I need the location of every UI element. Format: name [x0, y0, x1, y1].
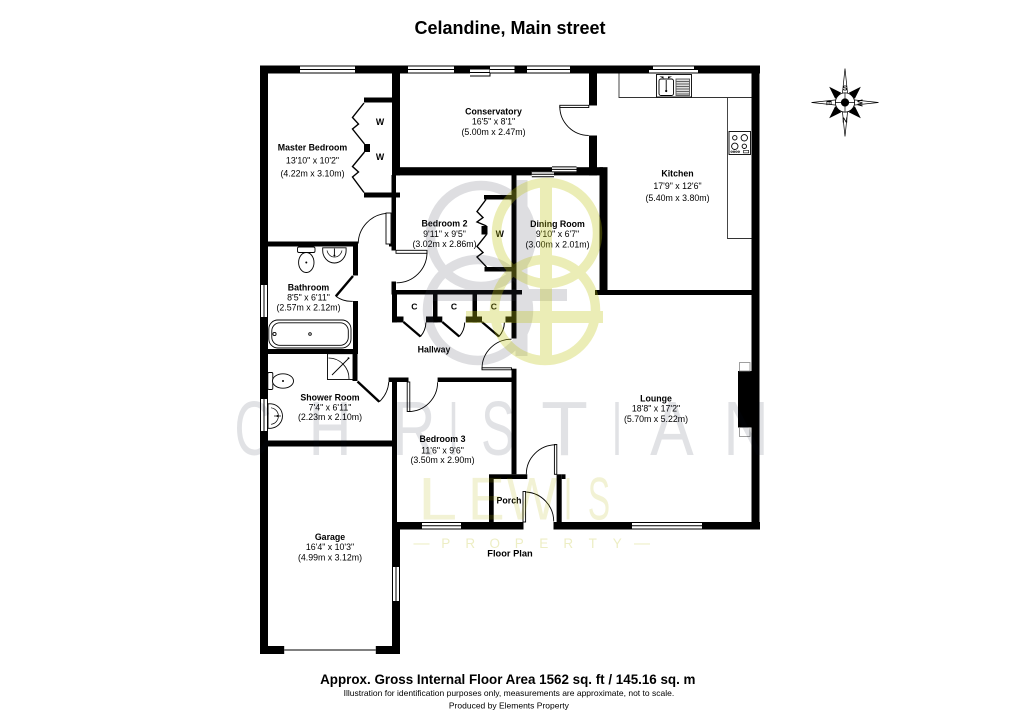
svg-text:E: E: [539, 536, 548, 551]
svg-text:P: P: [515, 536, 524, 551]
svg-text:—: —: [634, 535, 650, 552]
svg-text:W: W: [507, 467, 558, 534]
svg-text:S: S: [481, 385, 515, 471]
svg-text:I: I: [612, 385, 622, 471]
svg-text:P: P: [441, 536, 450, 551]
svg-text:N: N: [842, 115, 847, 124]
svg-text:C: C: [411, 302, 417, 312]
svg-text:(4.22m x 3.10m): (4.22m x 3.10m): [280, 168, 344, 178]
svg-text:Bathroom: Bathroom: [288, 282, 330, 292]
svg-text:S: S: [588, 466, 610, 533]
svg-text:13'10" x 10'2": 13'10" x 10'2": [286, 155, 339, 165]
svg-text:L: L: [418, 466, 457, 533]
svg-text:16'5" x 8'1": 16'5" x 8'1": [472, 117, 515, 127]
svg-text:T: T: [589, 536, 597, 551]
svg-text:E: E: [825, 100, 834, 105]
svg-text:8'5" x 6'11": 8'5" x 6'11": [287, 292, 330, 302]
svg-text:S: S: [842, 83, 847, 92]
svg-text:W: W: [376, 117, 385, 127]
svg-text:Y: Y: [613, 536, 622, 551]
svg-text:Garage: Garage: [315, 532, 345, 542]
svg-text:Approx. Gross Internal Floor A: Approx. Gross Internal Floor Area 1562 s…: [320, 672, 695, 687]
svg-text:C: C: [451, 302, 457, 312]
svg-text:16'4" x 10'3": 16'4" x 10'3": [306, 542, 354, 552]
svg-text:C: C: [234, 386, 271, 472]
svg-text:Kitchen: Kitchen: [661, 169, 693, 179]
svg-text:Dining Room: Dining Room: [530, 219, 585, 229]
svg-text:I: I: [564, 466, 572, 533]
svg-text:(5.00m x 2.47m): (5.00m x 2.47m): [461, 127, 525, 137]
svg-text:R: R: [392, 385, 435, 472]
svg-text:W: W: [376, 152, 385, 162]
svg-text:(3.02m x 2.86m): (3.02m x 2.86m): [412, 239, 476, 249]
svg-text:(5.40m x 3.80m): (5.40m x 3.80m): [645, 193, 709, 203]
svg-text:R: R: [465, 536, 475, 551]
svg-text:O: O: [489, 536, 500, 551]
svg-text:I: I: [448, 385, 458, 471]
svg-text:A: A: [650, 386, 694, 472]
svg-text:R: R: [563, 536, 573, 551]
svg-text:(4.99m x 3.12m): (4.99m x 3.12m): [298, 552, 362, 562]
svg-text:Conservatory: Conservatory: [465, 106, 522, 116]
svg-text:Master Bedroom: Master Bedroom: [278, 142, 348, 152]
svg-text:Illustration for identificatio: Illustration for identification purposes…: [344, 688, 675, 698]
svg-text:H: H: [309, 386, 352, 472]
svg-text:Produced by Elements Property: Produced by Elements Property: [449, 701, 570, 711]
svg-text:(2.57m x 2.12m): (2.57m x 2.12m): [276, 302, 340, 312]
svg-text:—: —: [414, 535, 430, 552]
svg-text:Celandine, Main street: Celandine, Main street: [414, 18, 605, 38]
svg-text:E: E: [468, 466, 504, 533]
svg-text:N: N: [723, 385, 769, 471]
svg-text:T: T: [541, 386, 588, 472]
svg-text:W: W: [855, 99, 864, 107]
svg-text:17'9" x 12'6": 17'9" x 12'6": [653, 181, 701, 191]
